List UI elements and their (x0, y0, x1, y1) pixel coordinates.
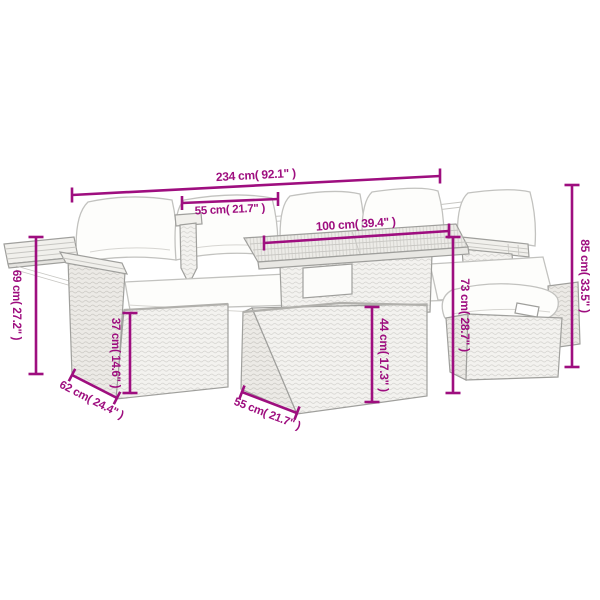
dimension-label: 73 cm( 28.7" ) (458, 278, 472, 352)
furniture-line-art: 234 cm( 92.1" ) 55 cm( 21.7" ) 100 cm( 3… (0, 0, 600, 600)
dimension-label: 85 cm( 33.5" ) (578, 239, 592, 313)
dimension-label: 44 cm( 17.3" ) (377, 318, 391, 392)
sofa-base (116, 304, 228, 399)
stool-front (466, 314, 562, 380)
dimension-diagram: 234 cm( 92.1" ) 55 cm( 21.7" ) 100 cm( 3… (0, 0, 600, 600)
back-pillow-1 (76, 197, 177, 263)
table-base (241, 303, 427, 414)
table-opening (303, 264, 352, 298)
dimension-label: 69 cm( 27.2" ) (10, 270, 22, 341)
dimension-label: 234 cm( 92.1" ) (216, 166, 297, 184)
dimension-label: 37 cm( 14.6" ) (109, 318, 121, 389)
